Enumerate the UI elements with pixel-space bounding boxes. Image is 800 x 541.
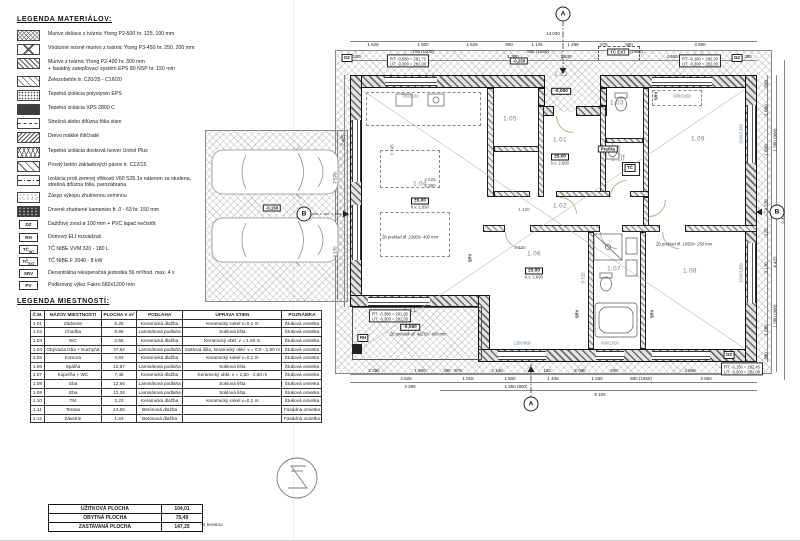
room-label: 1.08 [683, 269, 697, 276]
line-element [296, 146, 300, 150]
elevation-note-line: UT: -0,300 = 282,00 [682, 61, 718, 66]
room-label: 1.01±0,00k.v. 2,690 [551, 137, 569, 166]
room-label: 1.03 [610, 101, 624, 108]
rect-element [212, 150, 338, 194]
room-label: 1.02 [553, 204, 567, 211]
elevation-note: RT: -0,150 = 282,45UT: -0,300 = 282,00 [721, 362, 763, 375]
plan-label: TČ EXT [607, 49, 629, 56]
lintel-note: Žb preklad dl. 2300/v. 400 mm [382, 235, 438, 240]
rect-element [428, 94, 444, 106]
elevation-note: RT: -0,380 = 281,95UT: -0,300 = 282,00 [369, 309, 411, 322]
dimension-label: 1 350 (900) [504, 384, 527, 389]
elevation-note: RT: -0,580 = 281,72UT: -0,300 = 282,00 [387, 54, 429, 67]
section-marker-a: A [556, 7, 571, 22]
polygon-element [756, 209, 762, 216]
room-number: 1.10 [611, 157, 625, 164]
dimension-label: 125 [543, 368, 551, 373]
room-number: 1.04 [411, 181, 429, 188]
dimension-label: 300 [353, 54, 361, 59]
dimension-label: 1 680 [764, 104, 769, 115]
dimension-label: 7 570 [333, 172, 338, 183]
dimension-label: 975 [454, 368, 462, 373]
plan-label: SRV [468, 254, 473, 263]
line-element [296, 262, 300, 266]
window-tag: 600/1650 [601, 341, 618, 346]
ellipse-element [601, 277, 612, 291]
dimension-label: 14 030 [546, 31, 560, 36]
dimension-label: 300 [764, 80, 769, 88]
room-elevation: ±0,00 [551, 153, 569, 160]
room-label: 1.06±0,00k.v. 2,690 [525, 251, 543, 280]
rect-element [595, 303, 637, 337]
plan-label: -0,250 [510, 58, 528, 65]
dimension-label: 4 425 [772, 256, 777, 267]
plan-badge-dz: DZ [732, 54, 743, 62]
polygon-element [528, 366, 535, 372]
dimension-label: 2 425 [341, 134, 346, 145]
dimension-label: 1 380 (900) [772, 304, 777, 327]
dimension-label: 600 (1650) [630, 376, 652, 381]
room-number: 1.02 [553, 204, 567, 211]
dimension-label: 9 105 [594, 392, 605, 397]
elevation-note-line: RT: -0,580 = 281,72 [390, 56, 426, 61]
window-tag: 1500/1380 [739, 263, 744, 283]
dimension-label: 1 380 (900) [772, 128, 777, 151]
lintel-note: Žb preklad dl. 1850/v. 250 mm [656, 242, 712, 247]
room-number: 1.09 [691, 137, 705, 144]
section-marker-b: B [770, 205, 785, 220]
room-height: k.v. 2,690 [411, 206, 429, 211]
dimension-label: 900 (1850) [527, 49, 549, 54]
dimension-label: 1 680 [764, 324, 769, 335]
dimension-label: 4 320 [764, 199, 769, 210]
plan-label: SRV [654, 92, 659, 101]
elevation-note-line: UT: -0,300 = 282,00 [390, 61, 426, 66]
dimension-label: 300 [764, 352, 769, 360]
circle-element [277, 458, 317, 498]
room-number: 1.03 [610, 101, 624, 108]
architect-logo [277, 458, 317, 498]
section-marker-a: A [524, 397, 539, 412]
dimension-label: 1 420 [518, 207, 529, 212]
plan-badge-tč: TČ [625, 164, 636, 172]
plan-label: -0,150 [263, 205, 281, 212]
room-elevation: ±0,00 [411, 197, 429, 204]
lintel-note: Žb prievlak dl. 4625/v. 400 mm [390, 332, 447, 337]
elevation-note-line: UT: -0,300 = 282,00 [724, 369, 760, 374]
elevation-note-line: UT: -0,300 = 282,00 [372, 316, 408, 321]
dimension-label: 200 [610, 368, 618, 373]
room-label: 1.07 [607, 267, 621, 274]
dimension-label: 3 950 [700, 376, 711, 381]
drawing-sheet: LEGENDA MATERIÁLOV: Murivo deliace z tvá… [0, 0, 800, 541]
dimension-label: 300 [744, 54, 752, 59]
window-tag: 700/1100 [401, 94, 418, 99]
dimension-label: 1 288 [567, 42, 578, 47]
room-height: k.v. 2,690 [551, 162, 569, 167]
dimension-label: 4 175 [333, 246, 338, 257]
dimension-label: 1 500 [764, 144, 769, 155]
dimension-label: 1 800 [417, 42, 428, 47]
dimension-label: 1 500 [504, 376, 515, 381]
g-element [212, 214, 338, 266]
plan-linework [0, 0, 800, 540]
room-elevation: -0,060 [551, 88, 571, 95]
room-label: 1.04±0,00k.v. 2,690 [411, 181, 429, 210]
dimension-label: 1 260 [591, 376, 602, 381]
plan-badge-rh: RH [357, 334, 368, 342]
window-tag: 600/1950 [673, 94, 690, 99]
room-elevation: ±0,00 [525, 267, 543, 274]
dimension-label: 2 530 [514, 245, 525, 250]
room-number: 1.06 [525, 251, 543, 258]
dimension-label: 1 625 [466, 42, 477, 47]
rect-element [626, 238, 637, 254]
rect-element [212, 218, 338, 262]
elevation-note-line: RT: -0,150 = 282,45 [724, 364, 760, 369]
room-label: 1.10 [611, 157, 625, 164]
dimension-label: 3 800 [694, 42, 705, 47]
room-number: 1.01 [551, 137, 569, 144]
g-element [212, 146, 338, 198]
section-lines [312, 20, 770, 398]
room-number: 1.07 [607, 267, 621, 274]
html-element: html,body{margin:0;padding:0;background:… [0, 0, 800, 541]
dimension-label: 3 170 [764, 262, 769, 273]
plan-label: Pračka [598, 146, 618, 153]
window-tag: 1350/900 [513, 341, 530, 346]
elevation-note-line: RT: -0,380 = 281,95 [372, 311, 408, 316]
dimension-label: 3 136 [491, 368, 502, 373]
polygon-element [343, 211, 349, 218]
plan-badge-dz: DZ [342, 54, 353, 62]
dimension-label: 1 680 [414, 368, 425, 373]
dimension-label: 900 [505, 42, 513, 47]
window-tag: 1500/1380 [739, 124, 744, 144]
dimension-label: 3 290 [404, 384, 415, 389]
elevation-note-line: RT: -0,180 = 282,20 [682, 56, 718, 61]
floor-plan: 14 0301 6251 8001 6259001 1251 288875900… [0, 0, 800, 540]
dimension-label: 1 625 [367, 42, 378, 47]
rect-element [599, 307, 633, 333]
dimension-label: 3 856 [684, 368, 695, 373]
room-label: 1.12-0,060 [551, 72, 571, 96]
dimension-label: 300 [443, 368, 451, 373]
dimension-label: 4 625 [400, 376, 411, 381]
dimension-label: 4 650 [666, 54, 677, 59]
plan-label: SRV [575, 310, 580, 319]
room-number: 1.05 [503, 117, 517, 124]
room-label: 1.09 [691, 137, 705, 144]
dimension-label: 1 125 [531, 42, 542, 47]
dimension-label: 900 [625, 42, 633, 47]
plan-badge-dz: DZ [724, 351, 735, 359]
dimension-label: 1 630 [560, 54, 571, 59]
dimension-label: 2 030 [574, 368, 585, 373]
section-marker-b: B [297, 207, 312, 222]
body-element: { "materials_legend":{ "title":"LEGENDA … [0, 0, 800, 541]
circle-element [433, 97, 439, 103]
room-number: 1.08 [683, 269, 697, 276]
rect-element [626, 260, 637, 276]
polyline-element [288, 466, 307, 488]
dimension-label: 3 725 [581, 272, 586, 283]
dimension-label: 2 390 [368, 368, 379, 373]
dimension-label: 1 018 [462, 376, 473, 381]
dimension-label: 125 [764, 228, 769, 236]
line-element [296, 194, 300, 198]
room-height: k.v. 2,690 [525, 276, 543, 281]
dimension-label: 3 745 [390, 144, 395, 155]
dimension-label: 1 445 [547, 376, 558, 381]
elevation-note: RT: -0,180 = 282,20UT: -0,300 = 282,00 [679, 54, 721, 67]
room-number: 1.12 [551, 72, 571, 79]
room-label: 1.05 [503, 117, 517, 124]
room-elevation: -0,060 [400, 324, 420, 331]
dimension-label: 875 [600, 42, 608, 47]
plan-label: SRV [650, 310, 655, 319]
